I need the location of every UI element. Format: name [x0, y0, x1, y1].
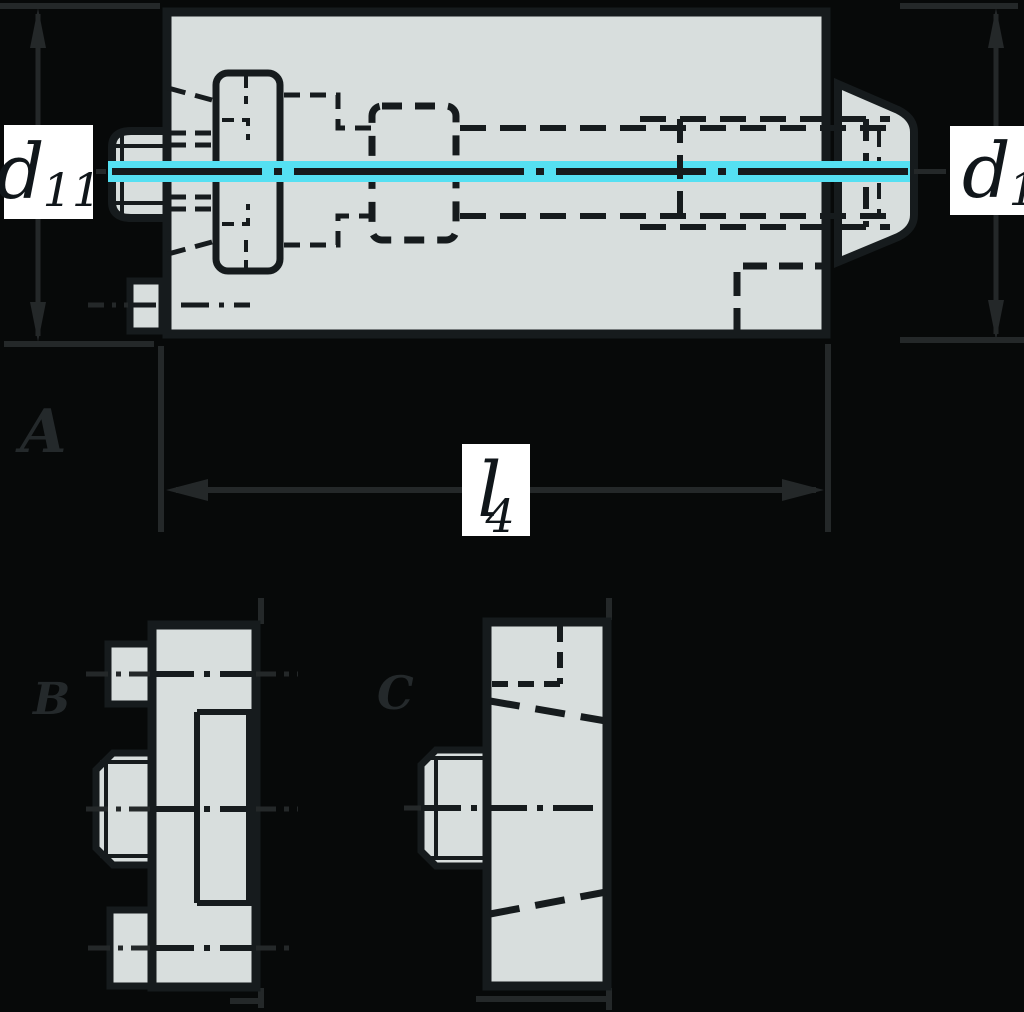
drawing-stage: d11 d1 l4 A B C [0, 0, 1024, 1012]
dim-d11-subscript: 11 [43, 167, 102, 213]
view-c [404, 598, 612, 1010]
dim-d11-symbol: d [0, 134, 45, 210]
view-label-c: C [377, 670, 414, 716]
dim-d1-subscript: 1 [1009, 166, 1024, 212]
dim-label-d11: d11 [4, 125, 93, 219]
view-label-a: A [20, 402, 67, 462]
view-c-body [487, 622, 607, 986]
dim-label-d1: d1 [950, 126, 1024, 215]
view-label-b: B [33, 678, 70, 722]
main-view [88, 12, 946, 334]
view-b [86, 598, 298, 1008]
dim-d1-symbol: d [962, 133, 1011, 209]
dim-l4-subscript: 4 [486, 493, 515, 539]
dim-label-l4: l4 [462, 444, 530, 536]
